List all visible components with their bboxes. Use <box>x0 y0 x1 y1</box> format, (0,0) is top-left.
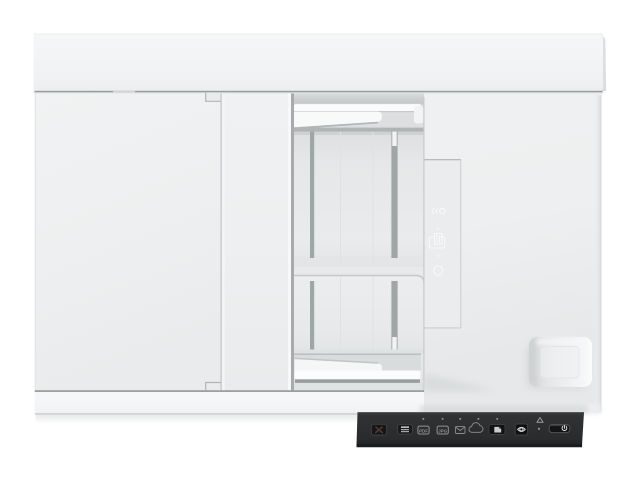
svg-text:JPG: JPG <box>438 428 447 433</box>
svg-text:PDF: PDF <box>419 428 428 433</box>
